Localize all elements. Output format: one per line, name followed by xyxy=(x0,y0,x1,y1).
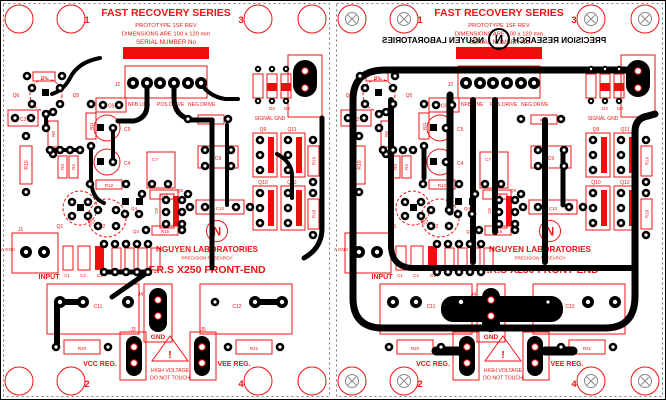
panel-copper-side: PRECISION RESEARCH N NGUYEN LABORATORIES xyxy=(334,4,663,397)
pcb-artwork-viewer: 1 3 2 4 FAST RECOVERY SERIES PROTOTYPE 1… xyxy=(0,0,666,400)
pcb-artwork: 1 3 2 4 FAST RECOVERY SERIES PROTOTYPE 1… xyxy=(0,0,666,400)
mirrored-division: PRECISION RESEARCH xyxy=(513,36,606,45)
panel-component-side xyxy=(1,4,330,397)
mirrored-logo-letter: N xyxy=(495,35,503,47)
mirrored-company: NGUYEN LABORATORIES xyxy=(381,36,484,45)
